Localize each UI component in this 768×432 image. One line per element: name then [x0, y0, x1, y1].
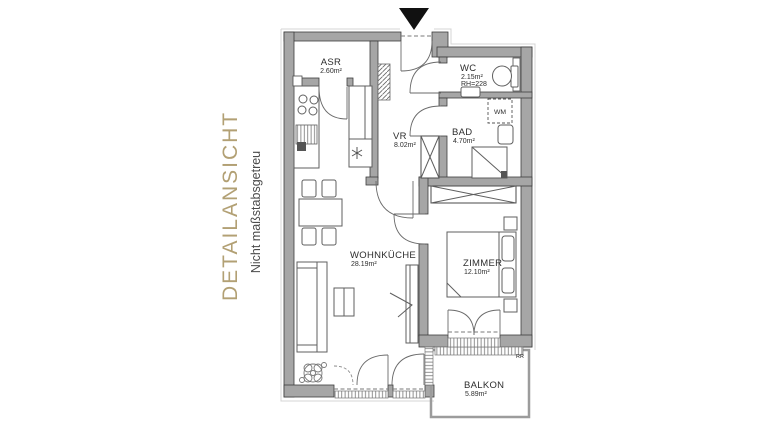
room-note-wc: RH=228 — [461, 81, 487, 88]
bad-door — [410, 106, 441, 136]
room-area-bad: 4.70m² — [453, 138, 475, 145]
room-label-bad: BAD — [452, 127, 472, 138]
shower — [472, 147, 507, 178]
installation-shaft — [421, 136, 439, 178]
vr-door — [376, 181, 413, 218]
nightstand — [504, 217, 517, 230]
room-area-wc: 2.15m² — [461, 74, 483, 81]
room-area-vr: 8.02m² — [394, 142, 416, 149]
plant — [300, 363, 327, 383]
nightstand — [504, 299, 517, 312]
coat-rack — [378, 64, 390, 100]
room-area-wohnkueche: 28.19m² — [351, 261, 377, 268]
floor-plan-page: DETAILANSICHT Nicht maßstabsgetreu — [0, 0, 768, 432]
room-label-wc: WC — [460, 63, 476, 74]
room-label-balkon: BALKON — [464, 380, 504, 391]
toilet — [493, 66, 519, 87]
room-label-vr: VR — [393, 131, 407, 142]
coffee-table — [334, 288, 354, 316]
kitchen-sink-basin — [297, 142, 306, 151]
sofa — [297, 262, 327, 352]
asr-door — [319, 87, 347, 119]
room-area-asr: 2.60m² — [320, 68, 342, 75]
wardrobe — [431, 186, 516, 203]
room-label-wohnkueche: WOHNKÜCHE — [350, 250, 416, 261]
tv-sideboard — [390, 265, 418, 343]
wohnkueche-french-door — [334, 355, 388, 398]
dining-set — [299, 180, 342, 245]
zimmer-door — [394, 214, 425, 244]
bad-sink — [498, 125, 513, 144]
rain-pipe-label: RR — [516, 354, 524, 360]
kitchen-sink — [296, 125, 317, 144]
room-area-balkon: 5.89m² — [465, 391, 487, 398]
wohnkueche-side-door — [392, 354, 425, 398]
wc-door — [410, 62, 441, 93]
entrance-arrow-icon — [399, 8, 429, 30]
room-area-zimmer: 12.10m² — [464, 269, 490, 276]
washing-machine-label: WM — [494, 109, 506, 116]
zimmer-balcony-door — [448, 310, 500, 347]
room-label-zimmer: ZIMMER — [463, 258, 502, 269]
floor-plan-svg: WM — [0, 0, 768, 432]
wc-sink — [461, 87, 480, 97]
room-label-asr: ASR — [321, 57, 341, 68]
kitchen-counter — [294, 86, 319, 168]
kitchen-tall-cabinet — [349, 86, 372, 167]
washing-machine: WM — [488, 99, 512, 123]
entrance-door — [401, 36, 432, 71]
